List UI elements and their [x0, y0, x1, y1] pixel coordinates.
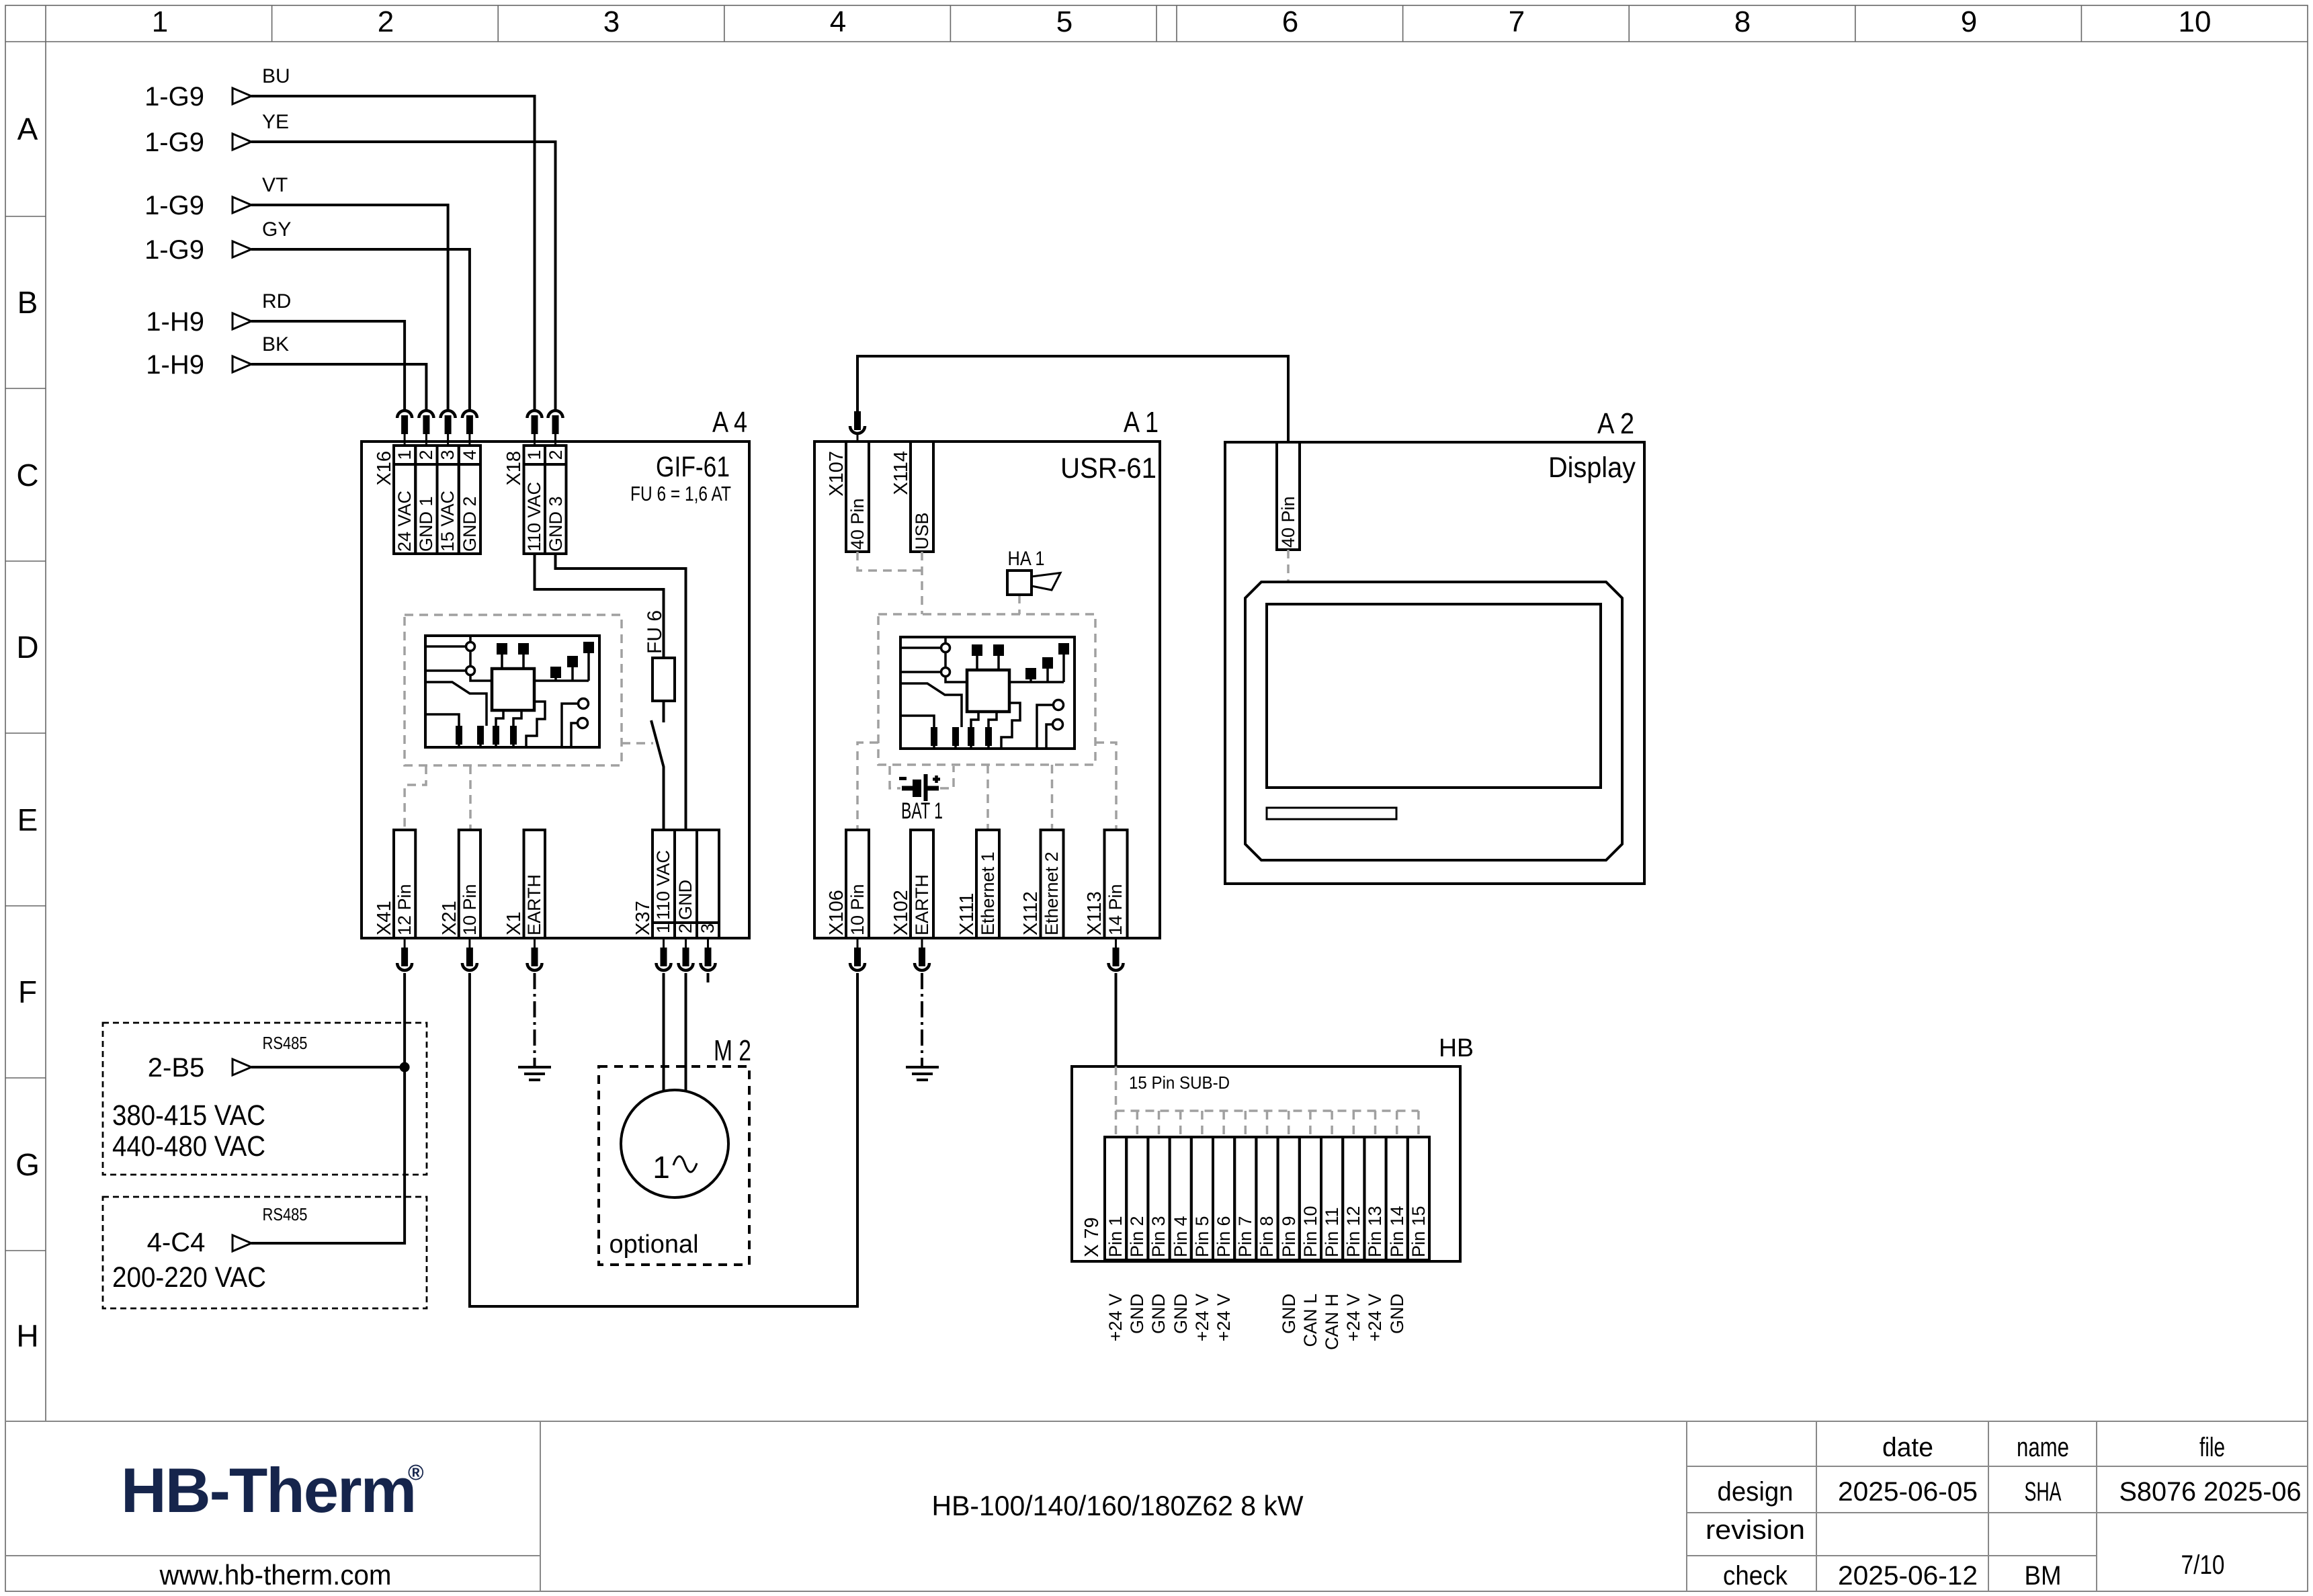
svg-text:GND 2: GND 2: [460, 496, 480, 552]
svg-text:Ethernet 2: Ethernet 2: [1042, 851, 1062, 935]
svg-text:M 2: M 2: [714, 1034, 751, 1067]
svg-text:380-415 VAC: 380-415 VAC: [112, 1099, 265, 1132]
svg-text:C: C: [16, 458, 38, 493]
svg-text:2: 2: [378, 5, 394, 38]
svg-text:YE: YE: [262, 111, 289, 133]
svg-text:X 79: X 79: [1081, 1217, 1103, 1257]
svg-text:GND: GND: [1127, 1294, 1147, 1334]
svg-text:BAT 1: BAT 1: [901, 798, 943, 824]
svg-text:S8076 2025-06: S8076 2025-06: [2119, 1477, 2302, 1507]
svg-text:USR-61: USR-61: [1060, 452, 1156, 485]
svg-text:®: ®: [408, 1460, 424, 1484]
svg-text:A: A: [17, 112, 38, 146]
svg-text:8: 8: [1734, 5, 1751, 38]
svg-text:+24 V: +24 V: [1365, 1294, 1385, 1341]
svg-text:1: 1: [394, 450, 415, 460]
svg-text:10 Pin: 10 Pin: [847, 884, 868, 935]
svg-text:GIF-61: GIF-61: [656, 451, 730, 483]
svg-text:Pin 6: Pin 6: [1214, 1216, 1234, 1257]
svg-text:+24 V: +24 V: [1192, 1294, 1212, 1341]
svg-text:1-G9: 1-G9: [144, 128, 204, 157]
svg-text:12 Pin: 12 Pin: [394, 884, 415, 935]
svg-text:VT: VT: [262, 174, 288, 196]
svg-text:3: 3: [603, 5, 620, 38]
svg-text:X41: X41: [374, 900, 395, 935]
svg-text:+24 V: +24 V: [1214, 1294, 1234, 1341]
svg-text:+24 V: +24 V: [1105, 1294, 1126, 1341]
svg-text:Pin 7: Pin 7: [1235, 1216, 1255, 1257]
svg-text:FU 6: FU 6: [644, 610, 666, 654]
svg-text:14 Pin: 14 Pin: [1105, 884, 1126, 935]
svg-text:2: 2: [546, 450, 566, 460]
svg-text:X18: X18: [503, 451, 525, 486]
svg-text:design: design: [1718, 1477, 1794, 1507]
svg-text:110 VAC: 110 VAC: [653, 850, 673, 920]
svg-text:Pin 10: Pin 10: [1300, 1206, 1320, 1257]
svg-text:6: 6: [1282, 5, 1298, 38]
svg-text:X16: X16: [374, 451, 395, 486]
svg-text:+24 V: +24 V: [1343, 1294, 1363, 1341]
svg-text:A 4: A 4: [712, 406, 747, 439]
svg-text:Pin 8: Pin 8: [1257, 1216, 1277, 1257]
svg-text:HA 1: HA 1: [1008, 548, 1045, 570]
svg-text:10 Pin: 10 Pin: [460, 884, 480, 935]
svg-text:110 VAC: 110 VAC: [524, 482, 544, 552]
svg-text:2025-06-05: 2025-06-05: [1838, 1477, 1978, 1507]
svg-text:D: D: [16, 630, 38, 665]
svg-text:GND: GND: [1171, 1294, 1191, 1334]
svg-text:USB: USB: [912, 512, 932, 550]
svg-text:HB-100/140/160/180Z62 8 kW: HB-100/140/160/180Z62 8 kW: [932, 1490, 1304, 1521]
svg-text:Pin 5: Pin 5: [1192, 1216, 1212, 1257]
svg-text:1: 1: [653, 923, 673, 933]
svg-text:1-H9: 1-H9: [146, 307, 204, 337]
svg-text:GND: GND: [1148, 1294, 1169, 1334]
svg-text:GY: GY: [262, 218, 291, 241]
svg-text:E: E: [17, 802, 38, 837]
svg-text:40 Pin: 40 Pin: [1278, 496, 1298, 548]
svg-text:15 VAC: 15 VAC: [437, 491, 458, 552]
svg-text:200-220 VAC: 200-220 VAC: [112, 1261, 266, 1294]
svg-text:40 Pin: 40 Pin: [847, 498, 868, 550]
svg-text:Pin 3: Pin 3: [1148, 1216, 1169, 1257]
svg-text:www.hb-therm.com: www.hb-therm.com: [159, 1559, 392, 1591]
svg-text:SHA: SHA: [2025, 1477, 2062, 1507]
svg-text:Display: Display: [1548, 452, 1636, 484]
svg-text:1-G9: 1-G9: [144, 235, 204, 265]
svg-text:2: 2: [416, 450, 436, 460]
svg-text:3: 3: [437, 450, 458, 460]
svg-text:2-B5: 2-B5: [148, 1053, 205, 1083]
svg-text:Pin 2: Pin 2: [1127, 1216, 1147, 1257]
svg-text:Pin 1: Pin 1: [1105, 1216, 1126, 1257]
svg-text:optional: optional: [609, 1230, 698, 1259]
svg-text:X1: X1: [503, 912, 525, 935]
svg-text:1: 1: [653, 1150, 670, 1185]
svg-text:Ethernet 1: Ethernet 1: [978, 851, 998, 935]
svg-text:10: 10: [2179, 5, 2212, 38]
svg-text:X102: X102: [890, 890, 912, 935]
svg-text:date: date: [1882, 1433, 1933, 1462]
svg-text:X21: X21: [439, 900, 460, 935]
svg-text:15 Pin SUB-D: 15 Pin SUB-D: [1129, 1073, 1230, 1093]
svg-text:Pin 4: Pin 4: [1171, 1216, 1191, 1257]
svg-text:440-480 VAC: 440-480 VAC: [112, 1130, 265, 1163]
svg-text:BK: BK: [262, 333, 289, 355]
svg-text:CAN L: CAN L: [1300, 1294, 1320, 1347]
svg-text:1: 1: [524, 450, 544, 460]
svg-text:CAN H: CAN H: [1322, 1294, 1342, 1350]
svg-text:HB-Therm: HB-Therm: [121, 1455, 415, 1525]
svg-text:H: H: [16, 1318, 38, 1353]
svg-text:X112: X112: [1020, 891, 1042, 935]
svg-text:7: 7: [1509, 5, 1525, 38]
svg-text:EARTH: EARTH: [912, 874, 932, 935]
svg-text:BU: BU: [262, 65, 290, 87]
svg-text:A 1: A 1: [1124, 406, 1159, 439]
svg-text:file: file: [2199, 1433, 2225, 1462]
svg-text:FU 6 = 1,6 AT: FU 6 = 1,6 AT: [630, 482, 731, 505]
svg-text:GND: GND: [1387, 1294, 1407, 1334]
svg-text:EARTH: EARTH: [524, 874, 544, 935]
svg-text:X111: X111: [956, 893, 978, 935]
svg-text:GND: GND: [1279, 1294, 1299, 1334]
svg-text:X114: X114: [890, 451, 912, 495]
svg-text:Pin 14: Pin 14: [1387, 1206, 1407, 1257]
svg-text:Pin 12: Pin 12: [1343, 1206, 1363, 1257]
svg-text:Pin 15: Pin 15: [1408, 1206, 1429, 1257]
svg-text:5: 5: [1056, 5, 1073, 38]
svg-text:GND 3: GND 3: [546, 496, 566, 552]
svg-text:4-C4: 4-C4: [147, 1228, 206, 1257]
svg-text:1: 1: [152, 5, 168, 38]
svg-text:Pin 11: Pin 11: [1322, 1207, 1342, 1257]
svg-text:RS485: RS485: [263, 1204, 308, 1224]
svg-text:GND 1: GND 1: [416, 496, 436, 552]
svg-text:X106: X106: [826, 890, 847, 935]
svg-text:Pin 13: Pin 13: [1365, 1206, 1385, 1257]
svg-text:9: 9: [1961, 5, 1977, 38]
svg-text:2: 2: [675, 923, 696, 933]
svg-text:GND: GND: [675, 880, 696, 920]
svg-text:BM: BM: [2025, 1561, 2062, 1591]
svg-text:F: F: [18, 974, 37, 1009]
svg-text:A 2: A 2: [1597, 407, 1634, 440]
svg-text:X113: X113: [1084, 891, 1105, 935]
svg-text:RS485: RS485: [263, 1033, 308, 1053]
svg-text:RD: RD: [262, 290, 291, 312]
svg-text:1-G9: 1-G9: [144, 82, 204, 112]
svg-text:B: B: [17, 285, 38, 320]
svg-text:7/10: 7/10: [2181, 1550, 2225, 1580]
svg-text:revision: revision: [1706, 1515, 1805, 1545]
svg-text:1-H9: 1-H9: [146, 350, 204, 380]
svg-text:3: 3: [698, 923, 718, 933]
svg-text:2025-06-12: 2025-06-12: [1838, 1561, 1978, 1591]
svg-text:1-G9: 1-G9: [144, 191, 204, 220]
svg-text:4: 4: [830, 5, 846, 38]
svg-text:X37: X37: [632, 900, 654, 935]
svg-text:24 VAC: 24 VAC: [394, 491, 415, 552]
svg-text:Pin 9: Pin 9: [1279, 1216, 1299, 1257]
svg-text:X107: X107: [826, 451, 847, 497]
svg-text:G: G: [15, 1147, 40, 1182]
svg-text:check: check: [1723, 1561, 1788, 1591]
svg-text:4: 4: [460, 450, 480, 460]
svg-text:name: name: [2017, 1433, 2069, 1462]
svg-text:HB: HB: [1439, 1034, 1474, 1062]
